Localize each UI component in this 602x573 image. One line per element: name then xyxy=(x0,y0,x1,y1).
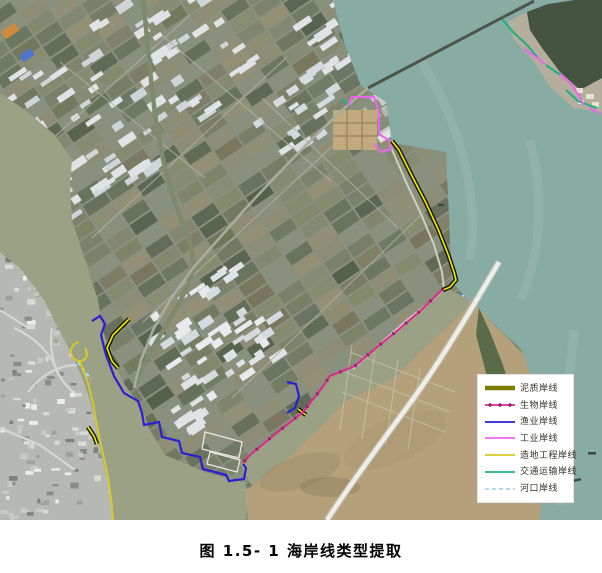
legend-swatch-muddy xyxy=(484,383,516,393)
legend-item-estuary: 河口岸线 xyxy=(484,483,571,495)
legend-label: 生物岸线 xyxy=(520,401,558,410)
legend-label: 渔业岸线 xyxy=(520,417,558,426)
legend-item-biological: 生物岸线 xyxy=(484,399,571,411)
plant-ponds xyxy=(333,110,377,150)
legend-swatch-industrial xyxy=(484,433,516,443)
legend-swatch-reclamation xyxy=(484,450,516,460)
legend: 泥质岸线 生物岸线 渔业岸线 工业岸线 造地工程岸线 交通运输岸线 河口岸线 xyxy=(477,374,574,503)
legend-item-industrial: 工业岸线 xyxy=(484,432,571,444)
legend-item-reclamation: 造地工程岸线 xyxy=(484,449,571,461)
legend-swatch-biological xyxy=(484,400,516,410)
legend-item-fishery: 渔业岸线 xyxy=(484,416,571,428)
legend-swatch-transport xyxy=(484,467,516,477)
legend-label: 河口岸线 xyxy=(520,484,558,493)
legend-swatch-fishery xyxy=(484,417,516,427)
legend-label: 泥质岸线 xyxy=(520,384,558,393)
legend-label: 造地工程岸线 xyxy=(520,451,577,460)
legend-label: 交通运输岸线 xyxy=(520,467,577,476)
figure-caption: 图 1.5- 1 海岸线类型提取 xyxy=(0,540,602,561)
legend-item-transport: 交通运输岸线 xyxy=(484,466,571,478)
legend-item-muddy: 泥质岸线 xyxy=(484,382,571,394)
figure: 泥质岸线 生物岸线 渔业岸线 工业岸线 造地工程岸线 交通运输岸线 河口岸线 图… xyxy=(0,0,602,573)
legend-swatch-estuary xyxy=(484,484,516,494)
legend-label: 工业岸线 xyxy=(520,434,558,443)
